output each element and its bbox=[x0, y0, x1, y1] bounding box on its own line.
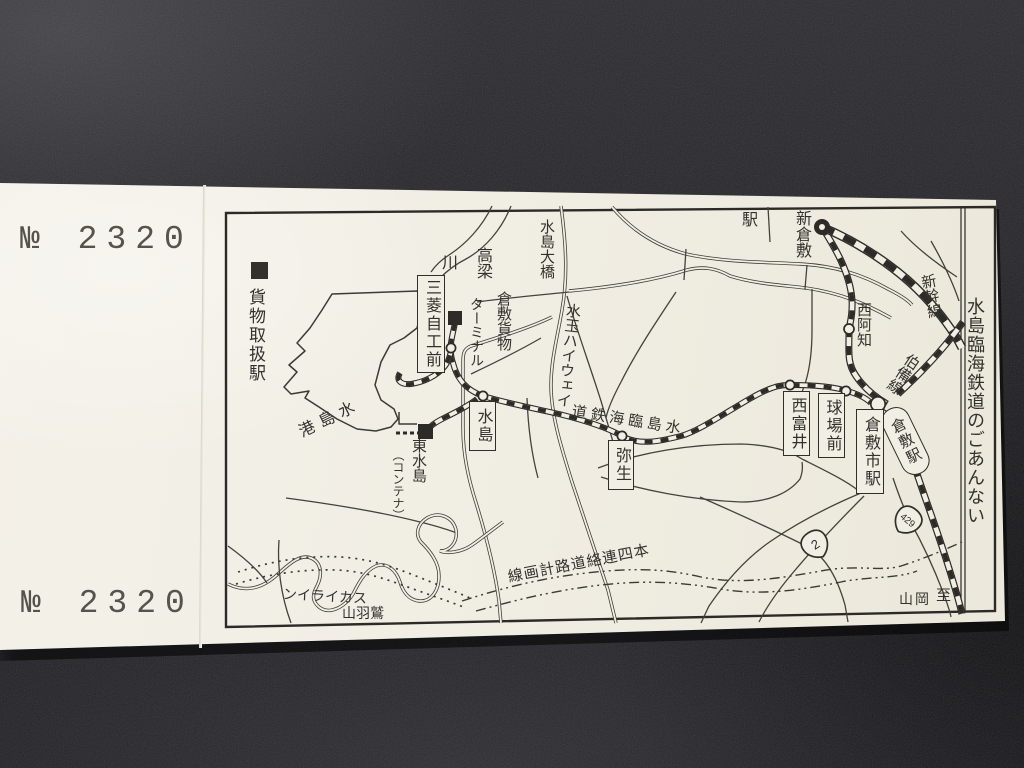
station-dot-mizushima bbox=[478, 391, 487, 400]
map-title: 水島臨海鉄道のごあんない bbox=[966, 297, 984, 525]
freight-square-higashi-mizushima bbox=[418, 424, 433, 439]
map-artwork: .railbase{stroke:#2c2b27;stroke-width:7;… bbox=[0, 0, 1024, 768]
route-429-shield: 429 bbox=[888, 502, 926, 540]
bridge-label-mizushima-ohashi: 水島大橋 bbox=[539, 219, 554, 279]
route-2-shield: 2 bbox=[797, 526, 834, 564]
freight-terminal-label-1: 倉敷貨物 bbox=[496, 291, 511, 351]
freight-legend-square-icon bbox=[251, 262, 268, 279]
serial-number-top: № 2320 bbox=[20, 221, 193, 258]
station-label-shin-kurashiki-eki: 駅 bbox=[739, 211, 755, 227]
station-label-higashi-mizushima: 東水島 bbox=[411, 438, 426, 483]
direction-label-to: 至 bbox=[936, 584, 951, 605]
river-label-takahashi-1: 高梁 bbox=[474, 247, 490, 279]
station-dot-nishi-achi bbox=[844, 324, 854, 334]
railway-shinkansen-line bbox=[822, 227, 962, 348]
station-box-yayoi: 弥生 bbox=[608, 440, 634, 490]
station-dot-mitsubishi bbox=[446, 343, 455, 352]
freight-square-mitsubishi bbox=[448, 311, 462, 325]
station-label-higashi-mizushima-note: （コンテナ） bbox=[392, 449, 404, 521]
station-box-nishi-tomii: 西富井 bbox=[783, 391, 810, 456]
mountain-label-washuzan: 山羽鷲 bbox=[342, 603, 384, 623]
river-label-takahashi-2: 川 bbox=[439, 254, 455, 270]
station-label-nishi-achi: 西阿知 bbox=[856, 302, 871, 347]
station-box-mizushima: 水島 bbox=[469, 401, 496, 451]
freight-legend-label: 貨物取扱駅 bbox=[247, 288, 264, 383]
serial-number-bottom: № 2320 bbox=[21, 585, 194, 622]
direction-label-okayama: 山岡 bbox=[899, 589, 931, 609]
station-box-mitsubishi-jiko-mae: 三菱自工前 bbox=[417, 275, 445, 373]
station-label-shin-kurashiki: 新倉敷 bbox=[793, 210, 809, 258]
freight-terminal-label-2: ターミナル bbox=[470, 297, 484, 367]
station-box-kurashiki-shi: 倉敷市駅 bbox=[856, 409, 884, 494]
station-dot-nishi-tomii bbox=[785, 380, 794, 389]
station-box-kyujo-mae: 球場前 bbox=[818, 393, 845, 458]
